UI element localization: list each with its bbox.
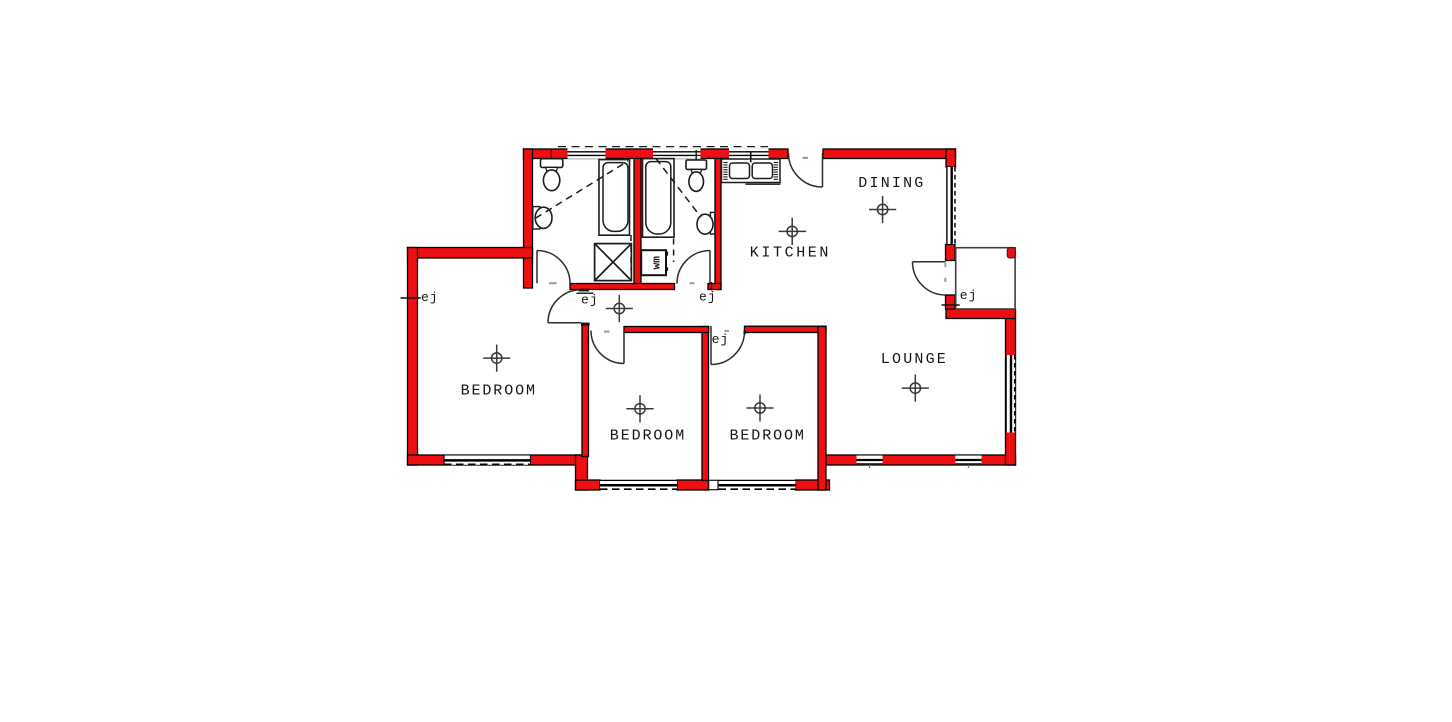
svg-text:BEDROOM: BEDROOM: [610, 427, 686, 444]
svg-text:ej: ej: [960, 288, 978, 303]
svg-text:ej: ej: [421, 290, 439, 305]
svg-text:BEDROOM: BEDROOM: [461, 382, 537, 399]
svg-text:DINING: DINING: [858, 175, 925, 192]
svg-text:wm: wm: [651, 256, 663, 270]
svg-text:ej: ej: [581, 293, 599, 308]
svg-text:BEDROOM: BEDROOM: [730, 427, 806, 444]
svg-text:ej: ej: [699, 290, 717, 305]
svg-text:KITCHEN: KITCHEN: [750, 245, 831, 262]
svg-text:LOUNGE: LOUNGE: [881, 351, 948, 368]
svg-text:ej: ej: [712, 332, 730, 347]
